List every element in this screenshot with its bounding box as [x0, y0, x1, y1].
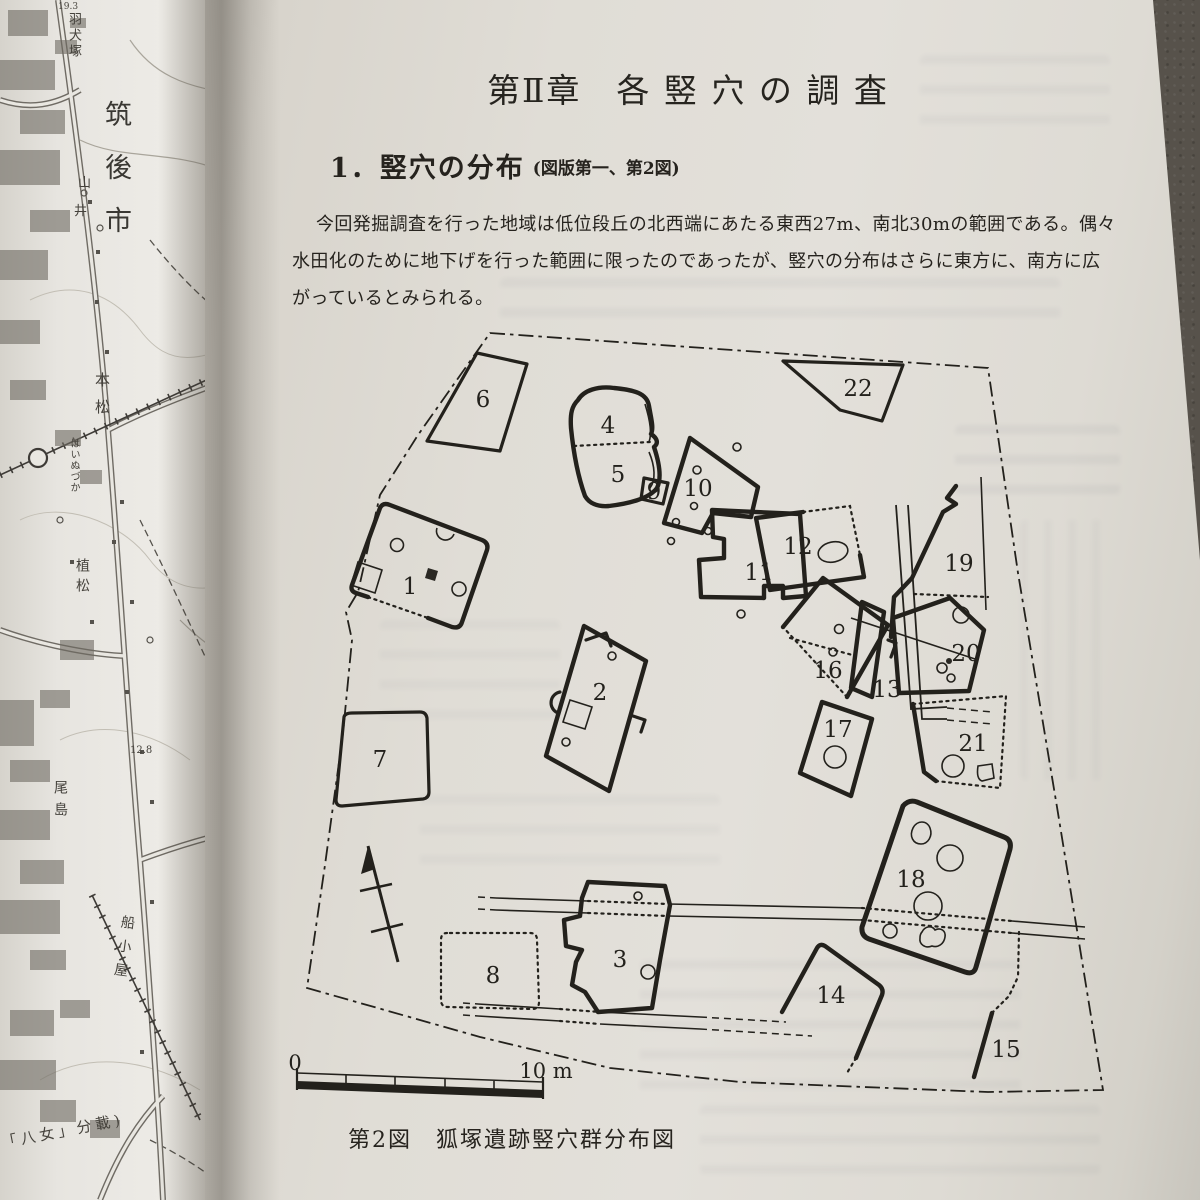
section-heading-text: 1．竪穴の分布 — [330, 153, 525, 184]
pit-label-14: 14 — [816, 983, 845, 1009]
pit-label-15: 15 — [991, 1037, 1020, 1063]
pit-label-10: 10 — [683, 476, 712, 502]
paragraph-line: 今回発掘調査を行った地域は低位段丘の北西端にあたる東西27m、南北30mの範囲で… — [292, 206, 1116, 243]
scale-bar: 0 10 m — [288, 1051, 572, 1099]
pit-label-22: 22 — [843, 376, 872, 402]
pit-label-12: 12 — [783, 534, 812, 560]
pit-label-8: 8 — [486, 963, 501, 989]
pit-label-17: 17 — [823, 717, 852, 743]
pit-label-9: 9 — [647, 479, 662, 505]
right-page-content: 第Ⅱ章 各 竪 穴 の 調 査 1．竪穴の分布(図版第一、第2図) 今回発掘調査… — [0, 0, 1200, 1200]
pit-label-21: 21 — [958, 731, 987, 757]
north-arrow — [360, 846, 403, 962]
body-paragraph: 今回発掘調査を行った地域は低位段丘の北西端にあたる東西27m、南北30mの範囲で… — [292, 206, 1116, 317]
pit-label-1: 1 — [403, 574, 418, 600]
scale-end-label: 10 m — [519, 1059, 572, 1083]
pit-label-18: 18 — [896, 867, 925, 893]
paragraph-line: がっているとみられる。 — [292, 280, 1116, 317]
page-bleedthrough — [920, 55, 1110, 145]
section-heading-note: (図版第一、第2図) — [533, 159, 680, 179]
pit-label-2: 2 — [593, 680, 608, 706]
pit-label-6: 6 — [476, 387, 491, 413]
figure-caption: 第2図 狐塚遺跡竪穴群分布図 — [348, 1122, 676, 1154]
pit-label-11: 11 — [744, 560, 773, 586]
pit-label-13: 13 — [872, 677, 901, 703]
pit-label-7: 7 — [373, 747, 388, 773]
paragraph-line: 水田化のために地下げを行った範囲に限ったのであったが、竪穴の分布はさらに東方に、… — [292, 243, 1116, 280]
pit-label-20: 20 — [951, 641, 980, 667]
book-photo: 羽犬塚 19.3 筑後市 山 井 本松 はいぬづか 植松 12.8 尾島 船小屋… — [0, 0, 1200, 1200]
pit-label-3: 3 — [613, 947, 628, 973]
pit-label-4: 4 — [601, 413, 616, 439]
pit-label-19: 19 — [944, 551, 973, 577]
pit-outline-2 — [546, 626, 646, 791]
chapter-title: 第Ⅱ章 各 竪 穴 の 調 査 — [487, 64, 889, 112]
section-heading: 1．竪穴の分布(図版第一、第2図) — [330, 146, 680, 185]
page-bleedthrough — [700, 1105, 1100, 1175]
pit-outline-1 — [351, 504, 487, 627]
pit-label-16: 16 — [813, 658, 842, 684]
scale-start-label: 0 — [288, 1051, 301, 1075]
pit-outline-18 — [862, 801, 1011, 973]
site-plan-svg: 0 10 m 1 2 3 4 5 6 7 8 9 10 11 12 13 14 … — [270, 315, 1130, 1115]
pit-label-5: 5 — [611, 462, 626, 488]
